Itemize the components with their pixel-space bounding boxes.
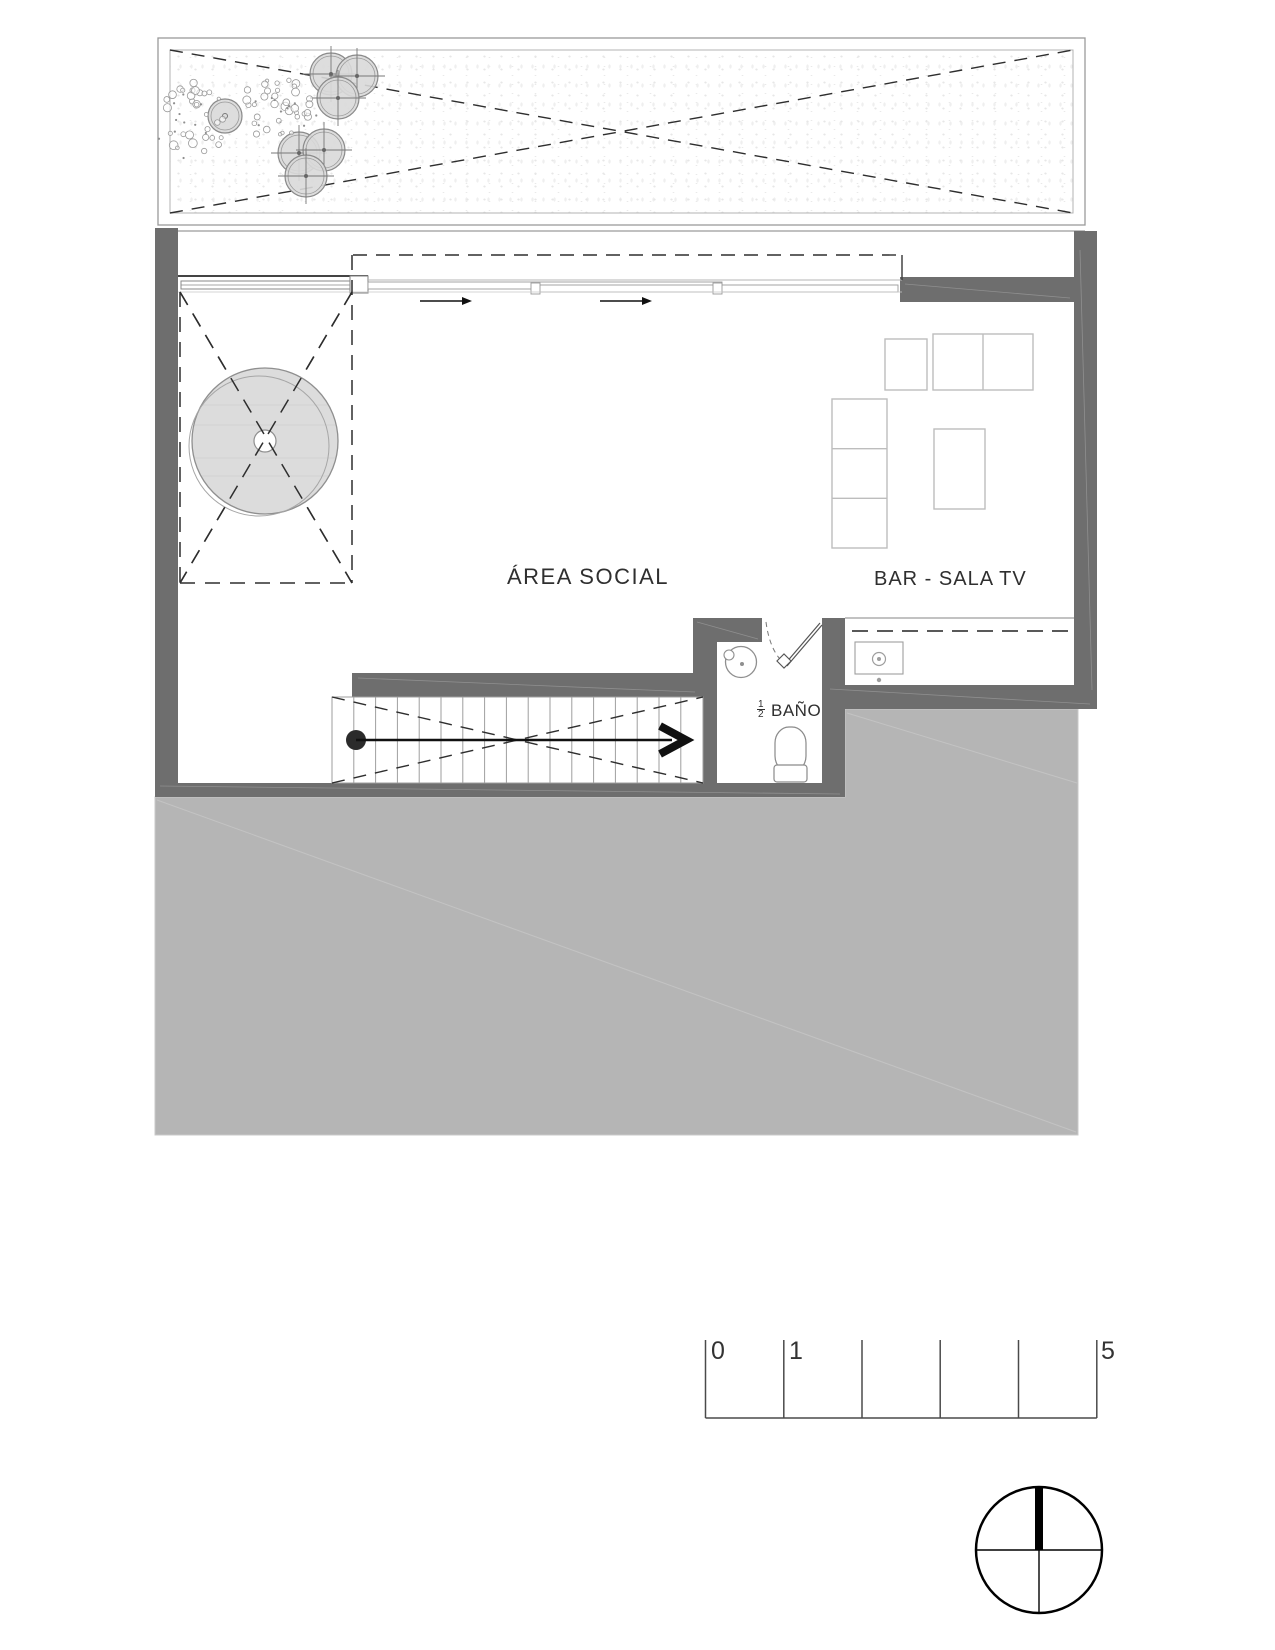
fraction-denominator: 2 — [757, 710, 765, 719]
scale-label-5: 5 — [1101, 1337, 1115, 1366]
tree-canopy-symbol — [189, 368, 340, 516]
coffee-table — [934, 429, 985, 509]
furniture — [832, 334, 1033, 548]
bar-counter — [845, 618, 1074, 682]
half-fraction: 1 2 — [757, 700, 765, 719]
door-slide-arrows — [420, 297, 652, 305]
floor-plan-drawing — [0, 0, 1275, 1650]
bar-sink — [855, 642, 903, 682]
armchair — [885, 339, 927, 390]
stairs — [332, 697, 703, 783]
window-and-sliding-door — [178, 255, 902, 305]
room-label-area-social: ÁREA SOCIAL — [507, 564, 669, 590]
scale-label-1: 1 — [789, 1337, 803, 1366]
sofa-two-seat — [933, 334, 1033, 390]
room-label-bano: BAÑO — [771, 701, 821, 721]
scale-bar — [706, 1340, 1097, 1418]
terrace-plan — [158, 38, 1085, 231]
door-swing — [766, 622, 822, 668]
room-label-bar-sala-tv: BAR - SALA TV — [874, 568, 1027, 591]
floor-plan-sheet: ÁREA SOCIAL BAR - SALA TV 1 2 BAÑO 0 1 5 — [0, 0, 1275, 1650]
toilet — [774, 727, 807, 782]
sofa-three-seat — [832, 399, 887, 548]
compass-north-icon — [976, 1487, 1102, 1613]
scale-label-0: 0 — [711, 1337, 725, 1366]
bathroom-sink — [724, 647, 757, 678]
